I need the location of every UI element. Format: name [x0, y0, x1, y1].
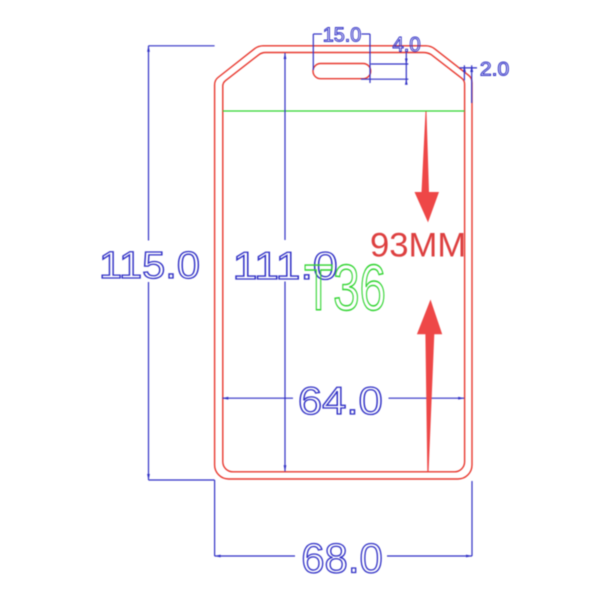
- svg-text:15.0: 15.0: [323, 25, 362, 47]
- svg-text:2.0: 2.0: [480, 60, 509, 81]
- svg-text:T36: T36: [304, 251, 386, 324]
- svg-text:68.0: 68.0: [301, 535, 383, 582]
- svg-text:115.0: 115.0: [99, 245, 200, 287]
- svg-text:64.0: 64.0: [298, 380, 383, 423]
- svg-text:4.0: 4.0: [392, 34, 420, 57]
